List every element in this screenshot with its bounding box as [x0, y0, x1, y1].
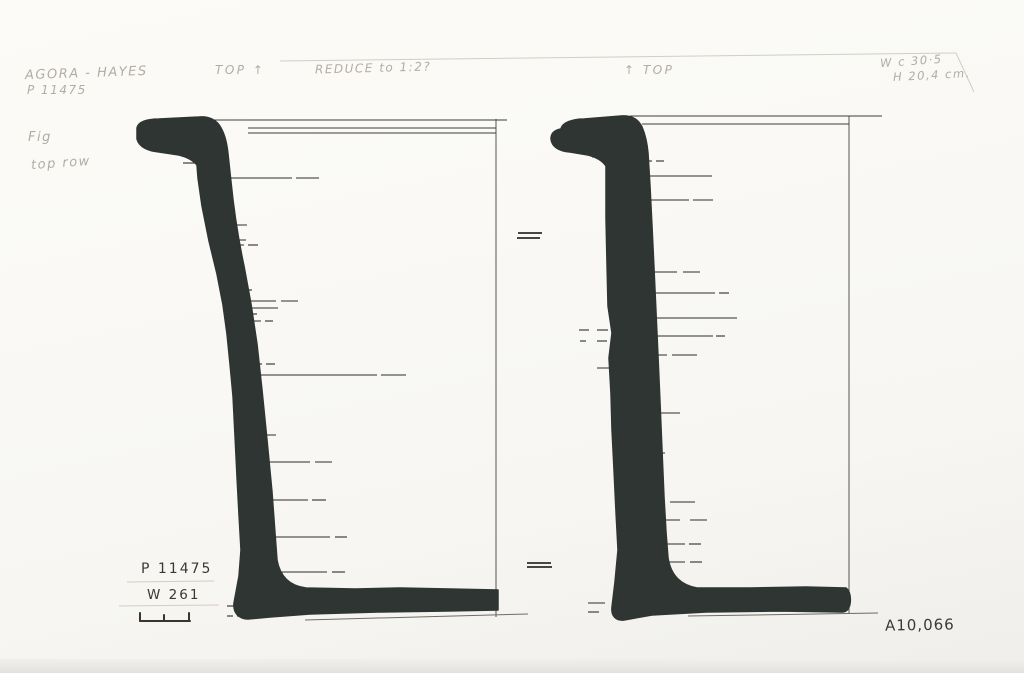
- scale-bar: [140, 613, 190, 621]
- pottery-profile-drawing: [0, 0, 1024, 673]
- construction-lines: [212, 116, 882, 620]
- scan-edge-shadow: [0, 659, 1024, 673]
- scanned-drawing-sheet: AGORA - HAYES P 11475 TOP ↑ REDUCE to 1:…: [0, 0, 1024, 673]
- left-vessel-profile: [137, 117, 498, 619]
- equals-marks: [517, 233, 552, 567]
